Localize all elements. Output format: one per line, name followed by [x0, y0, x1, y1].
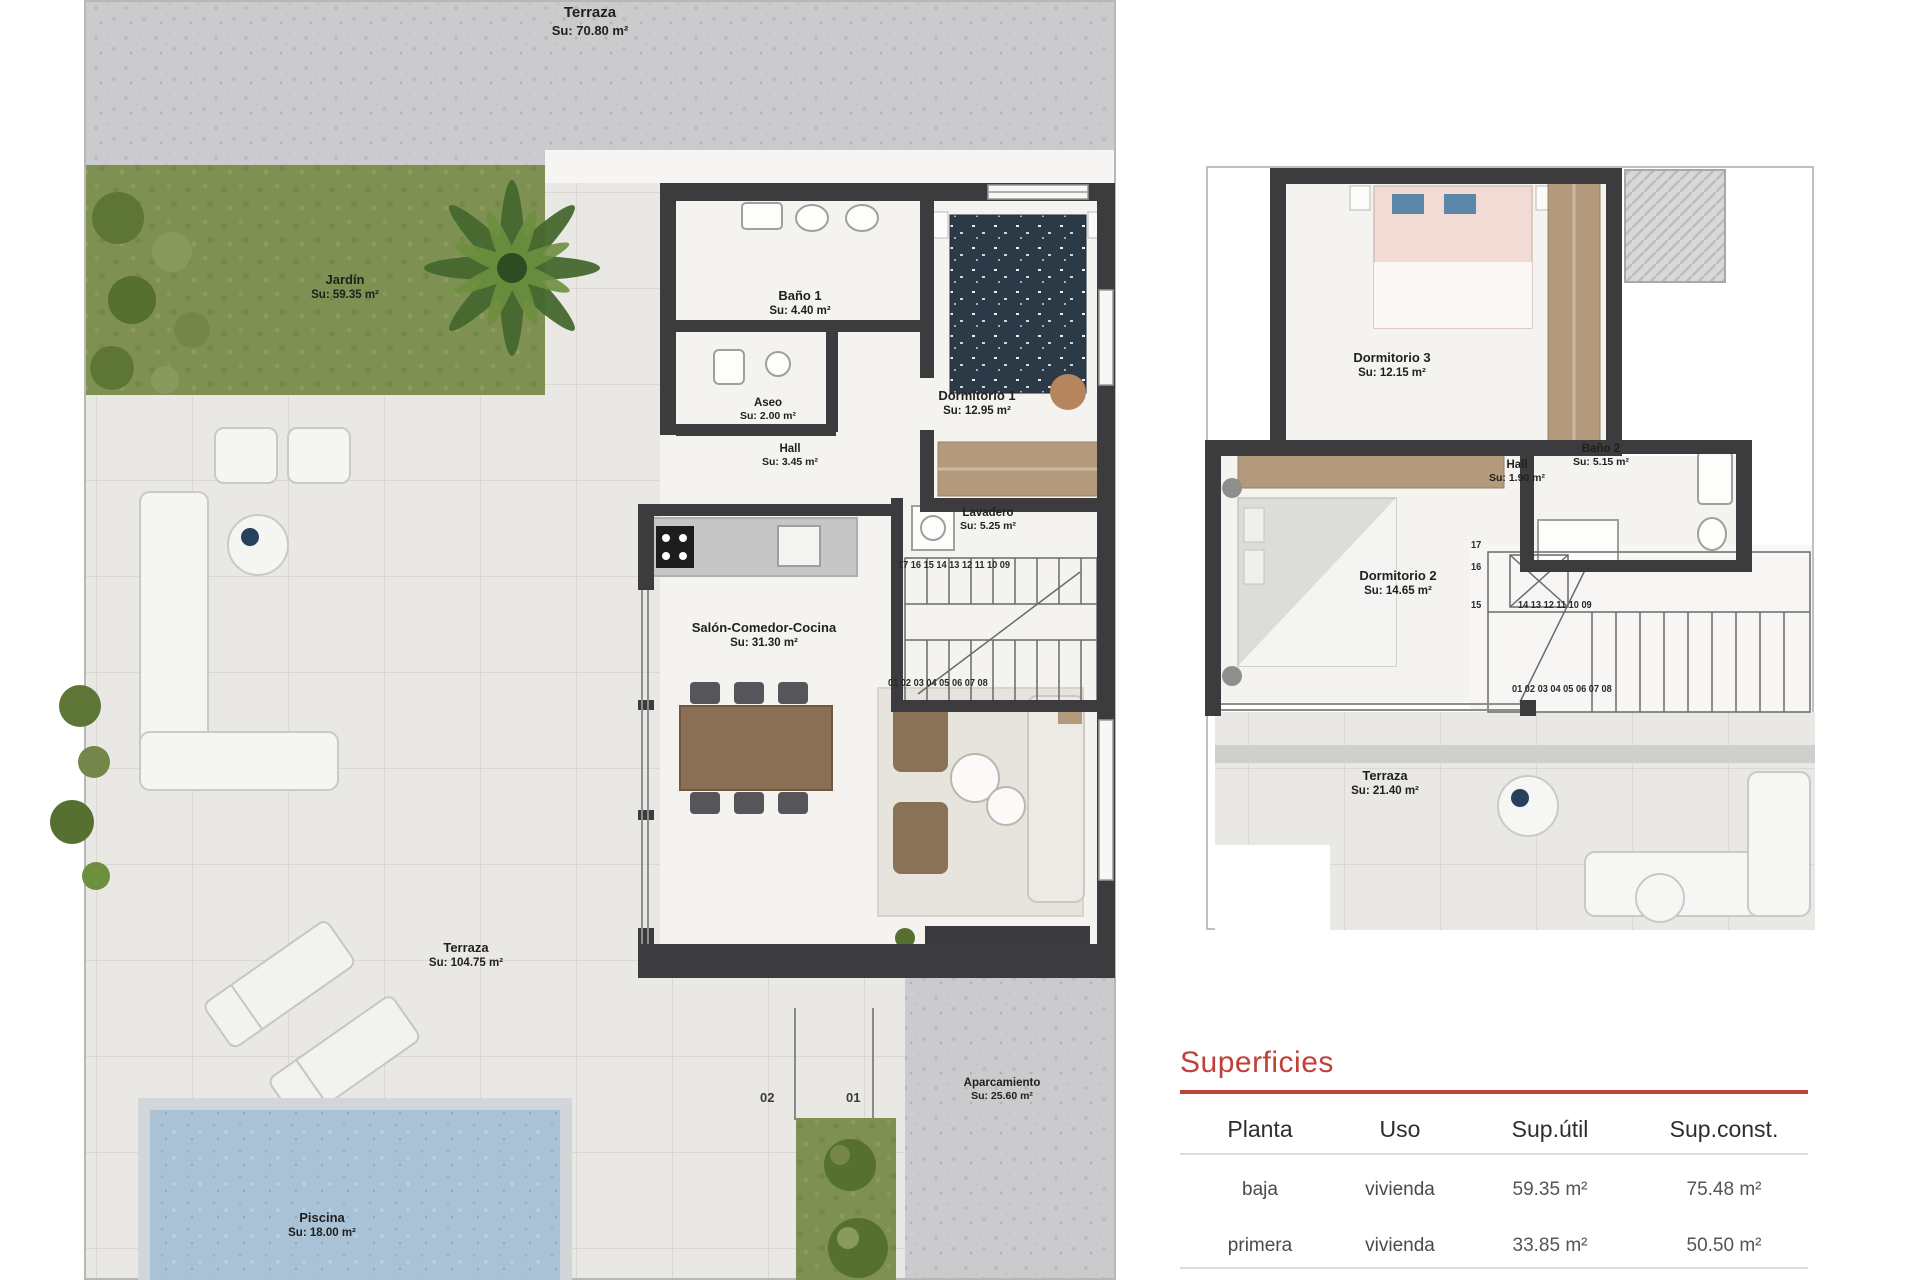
- room-label-aparcamiento: Aparcamiento Su: 25.60 m²: [964, 1076, 1041, 1104]
- stair-number-f1-16: 16: [1471, 562, 1481, 573]
- room-label-jardin: Jardín Su: 59.35 m²: [311, 272, 379, 303]
- aparcamiento-surface: [905, 978, 1115, 1280]
- col-header-planta: Planta: [1180, 1094, 1340, 1153]
- bed-dormitorio1: [928, 212, 1108, 393]
- room-label-dormitorio1: Dormitorio 1 Su: 12.95 m²: [938, 388, 1015, 419]
- palm-tree: [424, 180, 600, 356]
- table-cell-sup-const: 75.48 m²: [1640, 1155, 1808, 1211]
- room-label-terraza-gf: Terraza Su: 104.75 m²: [429, 940, 503, 971]
- superficies-table: Planta Uso Sup.útil Sup.const. baja vivi…: [1180, 1094, 1808, 1280]
- col-header-uso: Uso: [1340, 1094, 1460, 1153]
- stair-numbers-gf-top: 17 16 15 14 13 12 11 10 09: [898, 560, 1010, 571]
- table-plant: [241, 528, 259, 546]
- kitchen-counter: [642, 518, 857, 576]
- col-header-sup-const: Sup.const.: [1640, 1094, 1808, 1153]
- stair-numbers-f1-bottom: 01 02 03 04 05 06 07 08: [1512, 684, 1612, 695]
- stair-numbers-gf-bottom: 01 02 03 04 05 06 07 08: [888, 678, 988, 689]
- room-label-dormitorio2: Dormitorio 2 Su: 14.65 m²: [1359, 568, 1436, 599]
- table-cell-sup-const: 50.50 m²: [1640, 1211, 1808, 1267]
- first-floor-plan: [1205, 167, 1815, 930]
- room-label-hall-f1: Hall Su: 1.90 m²: [1489, 458, 1545, 486]
- room-label-hall-gf: Hall Su: 3.45 m²: [762, 442, 818, 470]
- table-cell-planta: Total: [1180, 1269, 1340, 1280]
- room-label-lavadero: Lavadero Su: 5.25 m²: [960, 506, 1016, 534]
- room-label-bano1: Baño 1 Su: 4.40 m²: [769, 288, 830, 319]
- parking-spot-02: 02: [760, 1090, 774, 1105]
- table-cell-planta: primera: [1180, 1211, 1340, 1267]
- ground-floor-plan: [50, 0, 1115, 1280]
- room-label-dormitorio3: Dormitorio 3 Su: 12.15 m²: [1353, 350, 1430, 381]
- room-label-terraza-f1: Terraza Su: 21.40 m²: [1351, 768, 1419, 799]
- table-cell-sup-const: 125.98 m²: [1640, 1269, 1808, 1280]
- table-cell-uso: vivienda: [1340, 1155, 1460, 1211]
- table-cell-sup-util: 59.35 m²: [1460, 1155, 1640, 1211]
- bed-dormitorio3: [1350, 186, 1556, 328]
- room-label-piscina: Piscina Su: 18.00 m²: [288, 1210, 356, 1241]
- room-label-bano2: Baño 2 Su: 5.15 m²: [1573, 442, 1629, 470]
- room-label-terraza-top: Terraza Su: 70.80 m²: [552, 4, 629, 39]
- superficies-title: Superficies: [1180, 1046, 1808, 1080]
- stair-number-f1-15: 15: [1471, 600, 1481, 611]
- table-cell-uso: vivienda: [1340, 1211, 1460, 1267]
- parking-spot-01: 01: [846, 1090, 860, 1105]
- stair-numbers-f1-top: 14 13 12 11 10 09: [1518, 600, 1592, 611]
- table-cell-sup-util: 93.20 m²: [1460, 1269, 1640, 1280]
- superficies-panel: Superficies Planta Uso Sup.útil Sup.cons…: [1180, 1046, 1808, 1280]
- table-cell-sup-util: 33.85 m²: [1460, 1211, 1640, 1267]
- hatched-void: [1625, 170, 1725, 282]
- table-cell-uso: [1340, 1269, 1460, 1280]
- stair-number-f1-17: 17: [1471, 540, 1481, 551]
- terrace-plant: [1511, 789, 1529, 807]
- table-cell-planta: baja: [1180, 1155, 1340, 1211]
- pool: [138, 1098, 572, 1280]
- bathroom1-fixtures: [742, 203, 878, 231]
- lavadero-appliance: [912, 506, 954, 550]
- room-label-salon: Salón-Comedor-Cocina Su: 31.30 m²: [692, 620, 836, 651]
- room-label-aseo: Aseo Su: 2.00 m²: [740, 396, 796, 424]
- living-area: [878, 688, 1090, 952]
- floor-plan-canvas: Terraza Su: 70.80 m² Jardín Su: 59.35 m²…: [0, 0, 1920, 1280]
- armchair-dormitorio1: [1050, 374, 1086, 410]
- col-header-sup-util: Sup.útil: [1460, 1094, 1640, 1153]
- wardrobe-dormitorio2: [1238, 452, 1504, 488]
